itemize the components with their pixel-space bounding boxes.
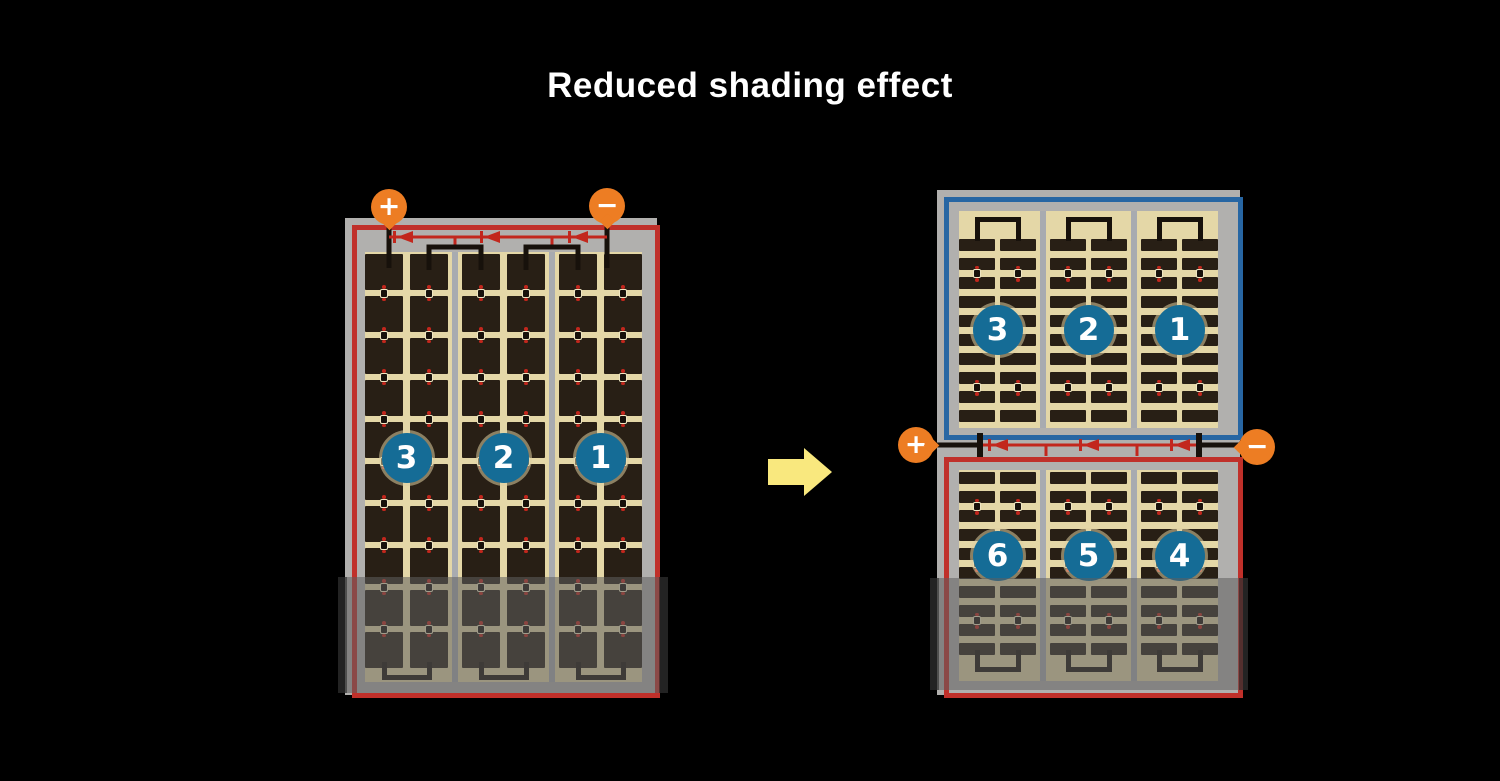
bypass-diode-icon	[1170, 439, 1190, 451]
solar-cell	[959, 624, 995, 636]
cell-connector-dot	[425, 579, 433, 595]
cell-connector-dot	[1014, 556, 1022, 572]
solar-cell	[1050, 529, 1086, 541]
string-number-badge: 6	[973, 531, 1023, 581]
solar-cell	[1000, 472, 1036, 484]
ribbon-joint	[380, 625, 388, 634]
solder-dot	[479, 285, 483, 289]
cell-connector-dot	[1064, 323, 1072, 339]
solar-cell	[604, 590, 642, 626]
solar-cell	[507, 590, 545, 626]
cell-connector-dot	[380, 285, 388, 301]
solder-dot	[382, 508, 386, 512]
solar-cell	[1091, 315, 1127, 327]
ribbon-joint	[477, 625, 485, 634]
solar-cell	[365, 548, 403, 584]
solder-dot	[524, 369, 528, 373]
cell-connector-dot	[619, 495, 627, 511]
solder-dot	[427, 466, 431, 470]
cell-connector-dot	[477, 579, 485, 595]
cell-connector-dot	[522, 537, 530, 553]
solar-cell	[559, 338, 597, 374]
solder-dot	[1157, 266, 1161, 270]
solar-cell	[410, 254, 448, 290]
solder-dot	[1107, 556, 1111, 560]
solar-cell	[959, 410, 995, 422]
ribbon-joint	[1064, 269, 1072, 278]
solder-dot	[1016, 613, 1020, 617]
solder-dot	[576, 453, 580, 457]
solder-dot	[1066, 380, 1070, 384]
right-bottom-cell-area	[959, 470, 1218, 681]
solar-cell	[1141, 239, 1177, 251]
solder-dot	[382, 592, 386, 596]
solar-cell	[1182, 410, 1218, 422]
ribbon-joint	[619, 499, 627, 508]
solar-cell	[1050, 391, 1086, 403]
solder-dot	[382, 382, 386, 386]
solder-dot	[1066, 392, 1070, 396]
solar-cell	[507, 380, 545, 416]
string-divider	[1040, 470, 1046, 681]
solar-cell	[1091, 529, 1127, 541]
solder-dot	[382, 495, 386, 499]
solar-cell	[559, 506, 597, 542]
cell-connector-dot	[1014, 266, 1022, 282]
ribbon-joint	[380, 289, 388, 298]
solar-cell	[410, 548, 448, 584]
cell-connector-dot	[1196, 613, 1204, 629]
solar-cell	[410, 506, 448, 542]
cell-connector-dot	[973, 499, 981, 515]
cell-connector-dot	[1064, 266, 1072, 282]
cell-connector-dot	[574, 453, 582, 469]
solder-dot	[479, 382, 483, 386]
ribbon-joint	[522, 541, 530, 550]
solder-dot	[1107, 499, 1111, 503]
solder-dot	[479, 592, 483, 596]
solar-cell	[1182, 643, 1218, 655]
left-shading-overlay	[338, 577, 668, 693]
ribbon-joint	[522, 583, 530, 592]
solar-cell	[462, 380, 500, 416]
left-module-series-border	[352, 225, 660, 698]
cell-connector-dot	[477, 369, 485, 385]
solar-cell	[410, 464, 448, 500]
ribbon-joint	[522, 415, 530, 424]
solder-dot	[1198, 511, 1202, 515]
ribbon-joint	[522, 331, 530, 340]
right-module-bottom-frame	[937, 445, 1240, 695]
solder-dot	[1016, 556, 1020, 560]
solar-cell	[1182, 605, 1218, 617]
solar-cell	[1000, 510, 1036, 522]
cell-connector-dot	[574, 537, 582, 553]
solder-dot	[1016, 335, 1020, 339]
solder-dot	[427, 382, 431, 386]
solder-dot	[382, 424, 386, 428]
solder-dot	[1157, 625, 1161, 629]
cell-connector-dot	[1196, 323, 1204, 339]
ribbon-joint	[477, 499, 485, 508]
solar-cell	[1091, 605, 1127, 617]
solder-dot	[524, 466, 528, 470]
ribbon-joint	[1155, 269, 1163, 278]
ribbon-joint	[1196, 326, 1204, 335]
solder-dot	[1107, 568, 1111, 572]
solar-cell	[559, 632, 597, 668]
solder-dot	[1016, 380, 1020, 384]
solar-cell	[1000, 605, 1036, 617]
solder-dot	[1157, 278, 1161, 282]
ribbon-joint	[1014, 269, 1022, 278]
cell-connector-dot	[619, 411, 627, 427]
cell-connector-dot	[973, 323, 981, 339]
solar-cell	[1141, 334, 1177, 346]
cell-connector-dot	[380, 327, 388, 343]
ribbon-joint	[1155, 559, 1163, 568]
solder-dot	[382, 634, 386, 638]
solder-dot	[1107, 335, 1111, 339]
solar-cell	[1182, 529, 1218, 541]
solder-dot	[479, 411, 483, 415]
solder-dot	[621, 424, 625, 428]
bypass-diode-icon	[568, 231, 588, 243]
cell-connector-dot	[380, 579, 388, 595]
solder-dot	[479, 508, 483, 512]
solar-cell	[365, 380, 403, 416]
solar-cell	[507, 254, 545, 290]
ribbon-joint	[380, 541, 388, 550]
cell-connector-dot	[973, 380, 981, 396]
solar-cell	[1050, 334, 1086, 346]
right-module-junction-wiring	[895, 425, 1285, 469]
solder-dot	[382, 621, 386, 625]
ribbon-joint	[477, 373, 485, 382]
ribbon-joint	[574, 457, 582, 466]
solder-dot	[427, 298, 431, 302]
ribbon-joint	[380, 415, 388, 424]
ribbon-joint	[477, 583, 485, 592]
string-return-bridge	[382, 662, 432, 680]
solder-dot	[975, 556, 979, 560]
solder-dot	[479, 621, 483, 625]
ribbon-joint	[425, 541, 433, 550]
bypass-diode-icon	[988, 439, 1008, 451]
cell-connector-dot	[1196, 266, 1204, 282]
solar-cell	[410, 632, 448, 668]
right-module: 3 2 1 6 5 4 + −	[0, 0, 1500, 781]
cell-connector-dot	[1064, 556, 1072, 572]
cell-connector-dot	[1155, 556, 1163, 572]
ribbon-joint	[973, 559, 981, 568]
solar-cell	[559, 590, 597, 626]
ribbon-joint	[619, 331, 627, 340]
ribbon-joint	[1014, 326, 1022, 335]
solar-cell	[1000, 239, 1036, 251]
solder-dot	[576, 340, 580, 344]
solder-dot	[427, 369, 431, 373]
string-link-bridge	[429, 247, 481, 270]
solar-cell	[1050, 315, 1086, 327]
ribbon-joint	[1196, 559, 1204, 568]
string-number-badge: 2	[1064, 305, 1114, 355]
solar-cell	[604, 296, 642, 332]
solar-cell	[1091, 372, 1127, 384]
solder-dot	[1198, 556, 1202, 560]
cell-connector-dot	[380, 495, 388, 511]
ribbon-joint	[574, 331, 582, 340]
ribbon-joint	[477, 331, 485, 340]
ribbon-joint	[619, 541, 627, 550]
solar-cell	[1091, 586, 1127, 598]
solder-dot	[1198, 499, 1202, 503]
solar-cell	[365, 590, 403, 626]
solar-cell	[462, 548, 500, 584]
solar-cell	[1141, 567, 1177, 579]
string-return-bridge	[1157, 650, 1203, 672]
solder-dot	[1198, 613, 1202, 617]
solar-cell	[1182, 353, 1218, 365]
solar-cell	[1182, 372, 1218, 384]
cell-connector-dot	[522, 579, 530, 595]
solder-dot	[975, 511, 979, 515]
cell-connector-dot	[619, 285, 627, 301]
solar-cell	[559, 422, 597, 458]
solar-cell	[1050, 548, 1086, 560]
solder-dot	[427, 495, 431, 499]
cell-connector-dot	[973, 613, 981, 629]
solar-cell	[559, 464, 597, 500]
cell-connector-dot	[477, 453, 485, 469]
ribbon-joint	[574, 499, 582, 508]
cell-connector-dot	[973, 266, 981, 282]
solder-dot	[621, 298, 625, 302]
ribbon-joint	[1196, 616, 1204, 625]
solder-dot	[576, 579, 580, 583]
solder-dot	[621, 579, 625, 583]
string-return-bridge	[1066, 650, 1112, 672]
solar-cell	[1141, 372, 1177, 384]
solder-dot	[1066, 266, 1070, 270]
solar-cell	[1182, 510, 1218, 522]
solar-cell	[365, 632, 403, 668]
cell-connector-dot	[1155, 266, 1163, 282]
solder-dot	[524, 411, 528, 415]
string-divider	[1131, 470, 1137, 681]
solder-dot	[576, 592, 580, 596]
solar-cell	[1050, 258, 1086, 270]
solder-dot	[1157, 613, 1161, 617]
solar-cell	[410, 296, 448, 332]
solder-dot	[621, 285, 625, 289]
right-bottom-series-border	[944, 457, 1243, 698]
solder-dot	[427, 621, 431, 625]
ribbon-joint	[1064, 383, 1072, 392]
solar-cell	[1182, 391, 1218, 403]
cell-connector-dot	[1014, 613, 1022, 629]
ribbon-joint	[425, 415, 433, 424]
ribbon-joint	[574, 415, 582, 424]
solder-dot	[524, 634, 528, 638]
solder-dot	[479, 327, 483, 331]
ribbon-joint	[1105, 383, 1113, 392]
solder-dot	[1198, 380, 1202, 384]
solar-cell	[462, 506, 500, 542]
solder-dot	[524, 508, 528, 512]
cell-connector-dot	[380, 411, 388, 427]
solar-cell	[1000, 529, 1036, 541]
solder-dot	[621, 621, 625, 625]
cell-connector-dot	[380, 537, 388, 553]
solder-dot	[1107, 278, 1111, 282]
cell-connector-dot	[477, 495, 485, 511]
solar-cell	[1141, 624, 1177, 636]
solar-cell	[1050, 605, 1086, 617]
solar-cell	[959, 334, 995, 346]
ribbon-joint	[973, 502, 981, 511]
cell-connector-dot	[425, 411, 433, 427]
solar-cell	[1000, 491, 1036, 503]
cell-connector-dot	[1105, 323, 1113, 339]
cell-connector-dot	[1014, 323, 1022, 339]
ribbon-joint	[380, 457, 388, 466]
solar-cell	[959, 510, 995, 522]
solar-cell	[604, 506, 642, 542]
solar-cell	[365, 422, 403, 458]
solder-dot	[479, 369, 483, 373]
solar-cell	[1182, 239, 1218, 251]
cell-connector-dot	[1105, 556, 1113, 572]
solder-dot	[1157, 511, 1161, 515]
ribbon-joint	[1014, 383, 1022, 392]
solar-cell	[1182, 472, 1218, 484]
solder-dot	[1016, 323, 1020, 327]
solar-cell	[1050, 410, 1086, 422]
solder-dot	[1107, 625, 1111, 629]
solar-cell	[1091, 510, 1127, 522]
cell-connector-dot	[1105, 266, 1113, 282]
solar-cell	[1000, 643, 1036, 655]
ribbon-joint	[1155, 326, 1163, 335]
solar-cell	[1050, 239, 1086, 251]
solar-cell	[410, 422, 448, 458]
cell-connector-dot	[1155, 613, 1163, 629]
ribbon-joint	[574, 541, 582, 550]
solder-dot	[1016, 266, 1020, 270]
solder-dot	[524, 424, 528, 428]
ribbon-joint	[380, 331, 388, 340]
cell-connector-dot	[574, 579, 582, 595]
cell-connector-dot	[425, 453, 433, 469]
solder-dot	[1107, 323, 1111, 327]
ribbon-joint	[1064, 559, 1072, 568]
ribbon-joint	[477, 415, 485, 424]
solder-dot	[1066, 335, 1070, 339]
ribbon-joint	[1105, 326, 1113, 335]
ribbon-joint	[574, 373, 582, 382]
solder-dot	[621, 495, 625, 499]
cell-connector-dot	[522, 453, 530, 469]
solder-dot	[479, 453, 483, 457]
cell-connector-dot	[973, 556, 981, 572]
solar-cell	[959, 529, 995, 541]
string-number-badge: 3	[382, 433, 432, 483]
solder-dot	[1157, 568, 1161, 572]
solder-dot	[479, 340, 483, 344]
cell-connector-dot	[477, 327, 485, 343]
solar-cell	[1141, 296, 1177, 308]
cell-connector-dot	[425, 327, 433, 343]
arrow-head-icon	[804, 448, 832, 496]
solder-dot	[975, 323, 979, 327]
solder-dot	[1016, 392, 1020, 396]
solar-cell	[462, 590, 500, 626]
diagram-canvas: Reduced shading effect 3 2 1 + −	[0, 0, 1500, 781]
solar-cell	[959, 605, 995, 617]
solder-dot	[1198, 625, 1202, 629]
ribbon-joint	[380, 499, 388, 508]
cell-connector-dot	[619, 621, 627, 637]
cell-connector-dot	[425, 537, 433, 553]
positive-terminal: +	[371, 189, 407, 225]
solder-dot	[621, 327, 625, 331]
ribbon-joint	[619, 415, 627, 424]
solar-cell	[1182, 548, 1218, 560]
solar-cell	[604, 338, 642, 374]
solder-dot	[427, 424, 431, 428]
solar-cell	[1000, 624, 1036, 636]
solar-cell	[559, 380, 597, 416]
solder-dot	[479, 579, 483, 583]
solar-cell	[507, 548, 545, 584]
cell-connector-dot	[477, 285, 485, 301]
solar-cell	[959, 372, 995, 384]
ribbon-joint	[522, 499, 530, 508]
cell-connector-dot	[1064, 499, 1072, 515]
ribbon-joint	[1014, 559, 1022, 568]
ribbon-joint	[973, 383, 981, 392]
string-divider	[452, 252, 458, 682]
solder-dot	[576, 298, 580, 302]
negative-terminal: −	[589, 188, 625, 224]
cell-connector-dot	[619, 453, 627, 469]
solder-dot	[576, 424, 580, 428]
right-module-top-frame	[937, 190, 1240, 445]
cell-connector-dot	[574, 369, 582, 385]
solder-dot	[382, 411, 386, 415]
solder-dot	[621, 466, 625, 470]
ribbon-joint	[973, 616, 981, 625]
string-divider	[1131, 211, 1137, 428]
solder-dot	[1157, 556, 1161, 560]
cell-connector-dot	[425, 369, 433, 385]
ribbon-joint	[425, 625, 433, 634]
ribbon-joint	[380, 373, 388, 382]
solar-cell	[1141, 315, 1177, 327]
cell-connector-dot	[1105, 380, 1113, 396]
ribbon-joint	[619, 373, 627, 382]
solar-cell	[1141, 643, 1177, 655]
solder-dot	[1198, 568, 1202, 572]
bypass-diode-icon	[393, 231, 413, 243]
ribbon-joint	[522, 457, 530, 466]
solder-dot	[621, 453, 625, 457]
cell-connector-dot	[477, 621, 485, 637]
solder-dot	[382, 340, 386, 344]
solder-dot	[1198, 266, 1202, 270]
solar-cell	[1000, 296, 1036, 308]
